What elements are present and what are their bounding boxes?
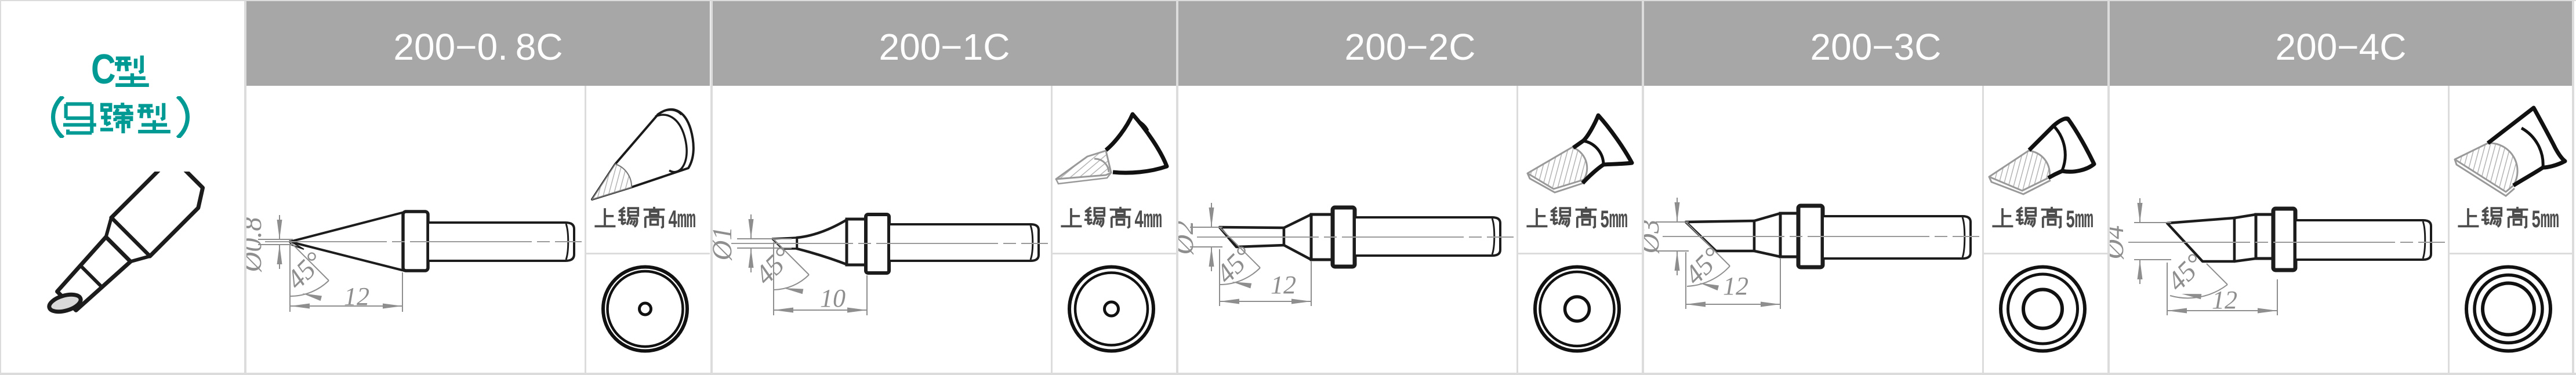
svg-text:Ø3: Ø3 bbox=[1644, 220, 1665, 254]
svg-text:Ø2: Ø2 bbox=[1178, 221, 1199, 256]
svg-text:45°: 45° bbox=[1210, 241, 1260, 290]
svg-text:Ø0.8: Ø0.8 bbox=[246, 217, 267, 273]
svg-text:Ø1: Ø1 bbox=[713, 227, 738, 261]
svg-text:12: 12 bbox=[2212, 286, 2237, 314]
svg-text:12: 12 bbox=[1271, 271, 1296, 299]
svg-text:5mm: 5mm bbox=[2531, 206, 2559, 233]
svg-text:4mm: 4mm bbox=[668, 206, 695, 233]
svg-text:45°: 45° bbox=[281, 246, 330, 296]
svg-text:Ø4: Ø4 bbox=[2110, 225, 2129, 260]
svg-text:10: 10 bbox=[820, 284, 846, 312]
svg-text:5mm: 5mm bbox=[1600, 206, 1627, 233]
svg-text:4mm: 4mm bbox=[1134, 206, 1162, 233]
svg-text:12: 12 bbox=[344, 282, 369, 311]
svg-text:12: 12 bbox=[1723, 272, 1748, 300]
svg-text:5mm: 5mm bbox=[2066, 206, 2093, 233]
